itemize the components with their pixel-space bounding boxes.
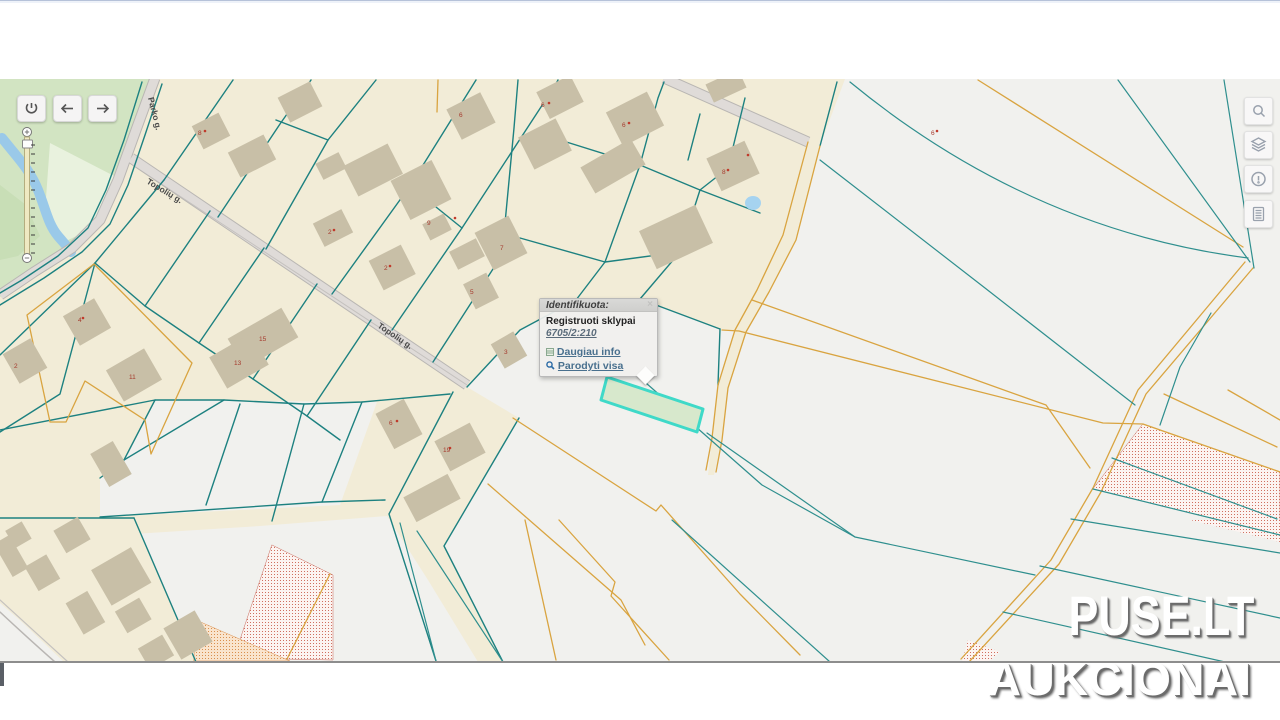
- svg-text:19: 19: [443, 447, 451, 454]
- svg-text:5: 5: [470, 289, 474, 296]
- svg-text:13: 13: [234, 360, 242, 367]
- svg-text:2: 2: [14, 363, 18, 370]
- svg-text:15: 15: [259, 336, 267, 343]
- svg-text:7: 7: [500, 245, 504, 252]
- svg-text:2: 2: [328, 229, 332, 236]
- svg-text:8: 8: [722, 169, 726, 176]
- svg-text:6: 6: [459, 112, 463, 119]
- svg-text:9: 9: [427, 220, 431, 227]
- svg-text:2: 2: [384, 265, 388, 272]
- svg-text:6: 6: [389, 420, 393, 427]
- svg-text:11: 11: [129, 374, 136, 381]
- svg-text:6: 6: [622, 122, 626, 129]
- svg-text:4: 4: [78, 317, 82, 324]
- svg-text:8: 8: [198, 130, 202, 137]
- svg-text:6: 6: [931, 130, 935, 137]
- svg-text:3: 3: [504, 349, 508, 356]
- svg-text:6: 6: [541, 102, 545, 109]
